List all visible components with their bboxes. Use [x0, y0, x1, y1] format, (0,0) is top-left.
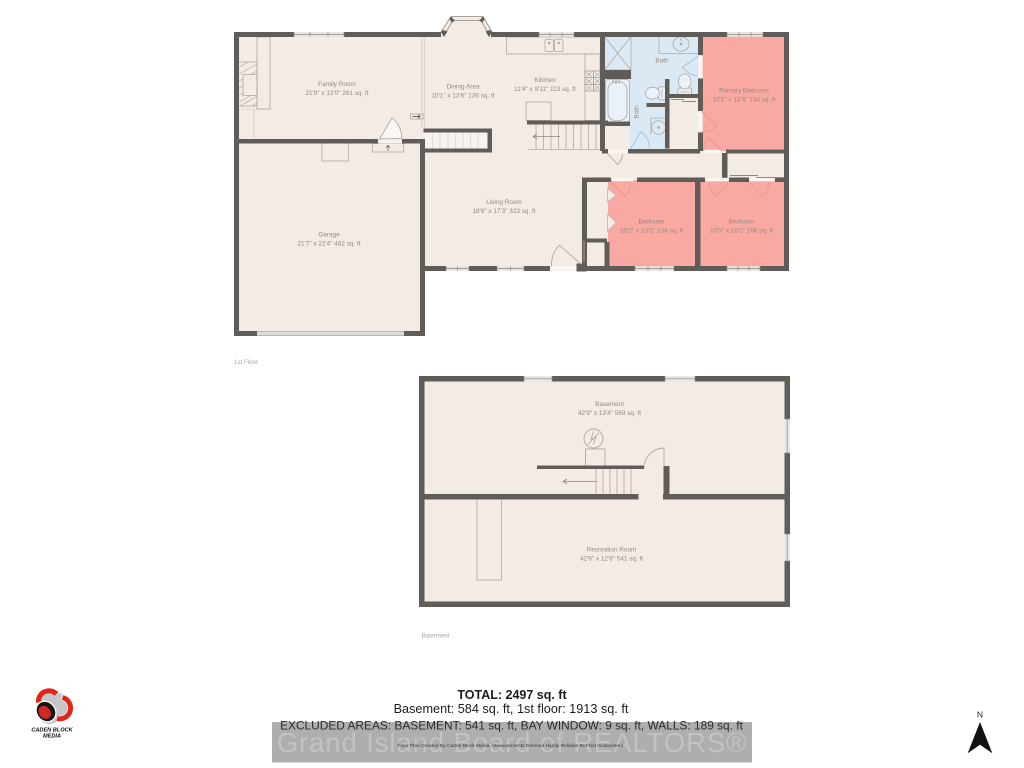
- svg-text:Family Room: Family Room: [318, 81, 356, 88]
- svg-text:10'1" x 13'6" 136 sq. ft: 10'1" x 13'6" 136 sq. ft: [431, 93, 494, 100]
- svg-text:Basement: 584 sq. ft, 1st floo: Basement: 584 sq. ft, 1st floor: 1913 sq…: [394, 702, 629, 716]
- svg-text:Basement: Basement: [595, 401, 624, 408]
- svg-text:42'9" x 12'8" 541 sq. ft: 42'9" x 12'8" 541 sq. ft: [580, 556, 643, 563]
- svg-text:21'9" x 12'0" 261 sq. ft: 21'9" x 12'0" 261 sq. ft: [305, 90, 368, 97]
- svg-text:Floor Plan Created By Caden Bl: Floor Plan Created By Caden Block Media.…: [398, 743, 625, 749]
- svg-text:Recreation Room: Recreation Room: [587, 547, 637, 554]
- svg-text:42'9" x 13'4" 569 sq. ft: 42'9" x 13'4" 569 sq. ft: [578, 410, 641, 417]
- svg-text:11'4" x 9'11" 113 sq. ft: 11'4" x 9'11" 113 sq. ft: [514, 86, 576, 93]
- svg-text:1st Floor: 1st Floor: [234, 359, 258, 366]
- svg-text:Bedroom: Bedroom: [639, 219, 665, 226]
- svg-text:Garage: Garage: [318, 232, 340, 239]
- svg-text:N: N: [977, 710, 983, 720]
- svg-text:TOTAL: 2497 sq. ft: TOTAL: 2497 sq. ft: [457, 688, 567, 702]
- svg-text:10'5" x 10'2" 106 sq. ft: 10'5" x 10'2" 106 sq. ft: [710, 228, 773, 235]
- svg-text:18'8" x 17'3" 323 sq. ft: 18'8" x 17'3" 323 sq. ft: [472, 208, 535, 215]
- svg-text:Bath: Bath: [634, 105, 641, 119]
- svg-text:Basement: Basement: [422, 633, 450, 640]
- svg-text:Dining Area: Dining Area: [446, 84, 479, 91]
- svg-text:10'1" x 13'4" 134 sq. ft: 10'1" x 13'4" 134 sq. ft: [712, 97, 775, 104]
- svg-text:Living Room: Living Room: [486, 199, 522, 206]
- svg-text:EXCLUDED AREAS: BASEMENT: 541: EXCLUDED AREAS: BASEMENT: 541 sq. ft, BA…: [280, 719, 743, 733]
- svg-text:MEDIA: MEDIA: [43, 734, 61, 740]
- svg-text:21'7" x 22'4" 482 sq. ft: 21'7" x 22'4" 482 sq. ft: [297, 241, 360, 248]
- svg-text:Kitchen: Kitchen: [534, 77, 556, 84]
- svg-text:Bedroom: Bedroom: [729, 219, 755, 226]
- svg-text:Bath: Bath: [655, 58, 669, 65]
- svg-text:Primary Bedroom: Primary Bedroom: [719, 88, 769, 95]
- svg-text:10'2" x 10'2" 104 sq. ft: 10'2" x 10'2" 104 sq. ft: [620, 228, 683, 235]
